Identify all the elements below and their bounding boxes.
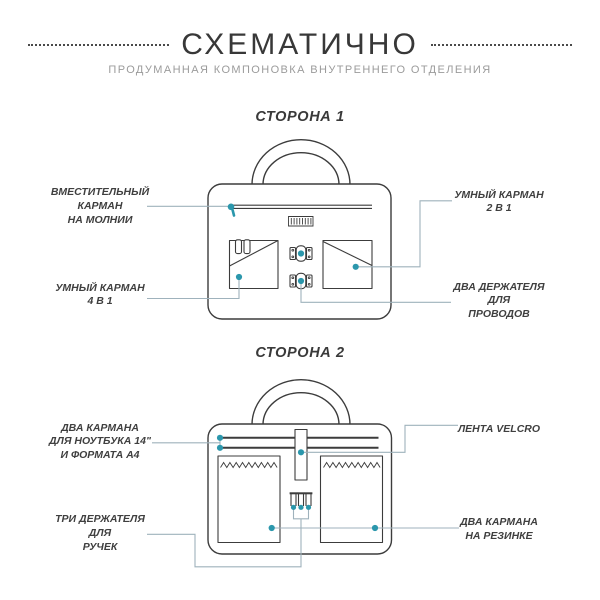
marker-laptop-pocket (217, 435, 223, 441)
marker-2in1 (353, 264, 359, 270)
marker-left-elastic (269, 525, 275, 531)
marker-4in1 (236, 274, 242, 280)
bag2-handle-inner (263, 393, 339, 425)
bag2-handle-outer (252, 380, 350, 425)
pen-slot-icon (236, 240, 242, 254)
marker-velcro (298, 449, 304, 455)
schematic-infographic: СХЕМАТИЧНО ПРОДУМАННАЯ КОМПОНОВКА ВНУТРЕ… (0, 0, 600, 600)
marker-pen (298, 505, 303, 510)
zipper-pull-tail (233, 210, 234, 216)
marker-pen (306, 505, 311, 510)
label-smart-pocket-2in1: УМНЫЙ КАРМАН 2 В 1 (424, 189, 574, 217)
label-wire-holders: ДВА ДЕРЖАТЕЛЯ ДЛЯ ПРОВОДОВ (424, 281, 574, 322)
pen-slot-icon (244, 240, 250, 254)
label-laptop-pockets: ДВА КАРМАНА ДЛЯ НОУТБУКА 14" И ФОРМАТА А… (25, 422, 175, 463)
label-elastic-pockets: ДВА КАРМАНА НА РЕЗИНКЕ (424, 516, 574, 544)
label-velcro-strip: ЛЕНТА VELCRO (424, 423, 574, 437)
label-zipper-pocket: ВМЕСТИТЕЛЬНЫЙ КАРМАН НА МОЛНИИ (25, 186, 175, 227)
label-smart-pocket-4in1: УМНЫЙ КАРМАН 4 В 1 (25, 282, 175, 310)
marker-right-elastic (372, 525, 378, 531)
bag1-handle-inner (263, 153, 339, 185)
marker-a4-pocket (217, 445, 223, 451)
marker-pen (291, 505, 296, 510)
label-pen-holders: ТРИ ДЕРЖАТЕЛЯ ДЛЯ РУЧЕК (25, 513, 175, 554)
marker-wire-clip (298, 278, 304, 284)
bag1-handle-outer (252, 140, 350, 185)
marker-wire-clip (298, 250, 304, 256)
bag-side1 (208, 140, 391, 319)
